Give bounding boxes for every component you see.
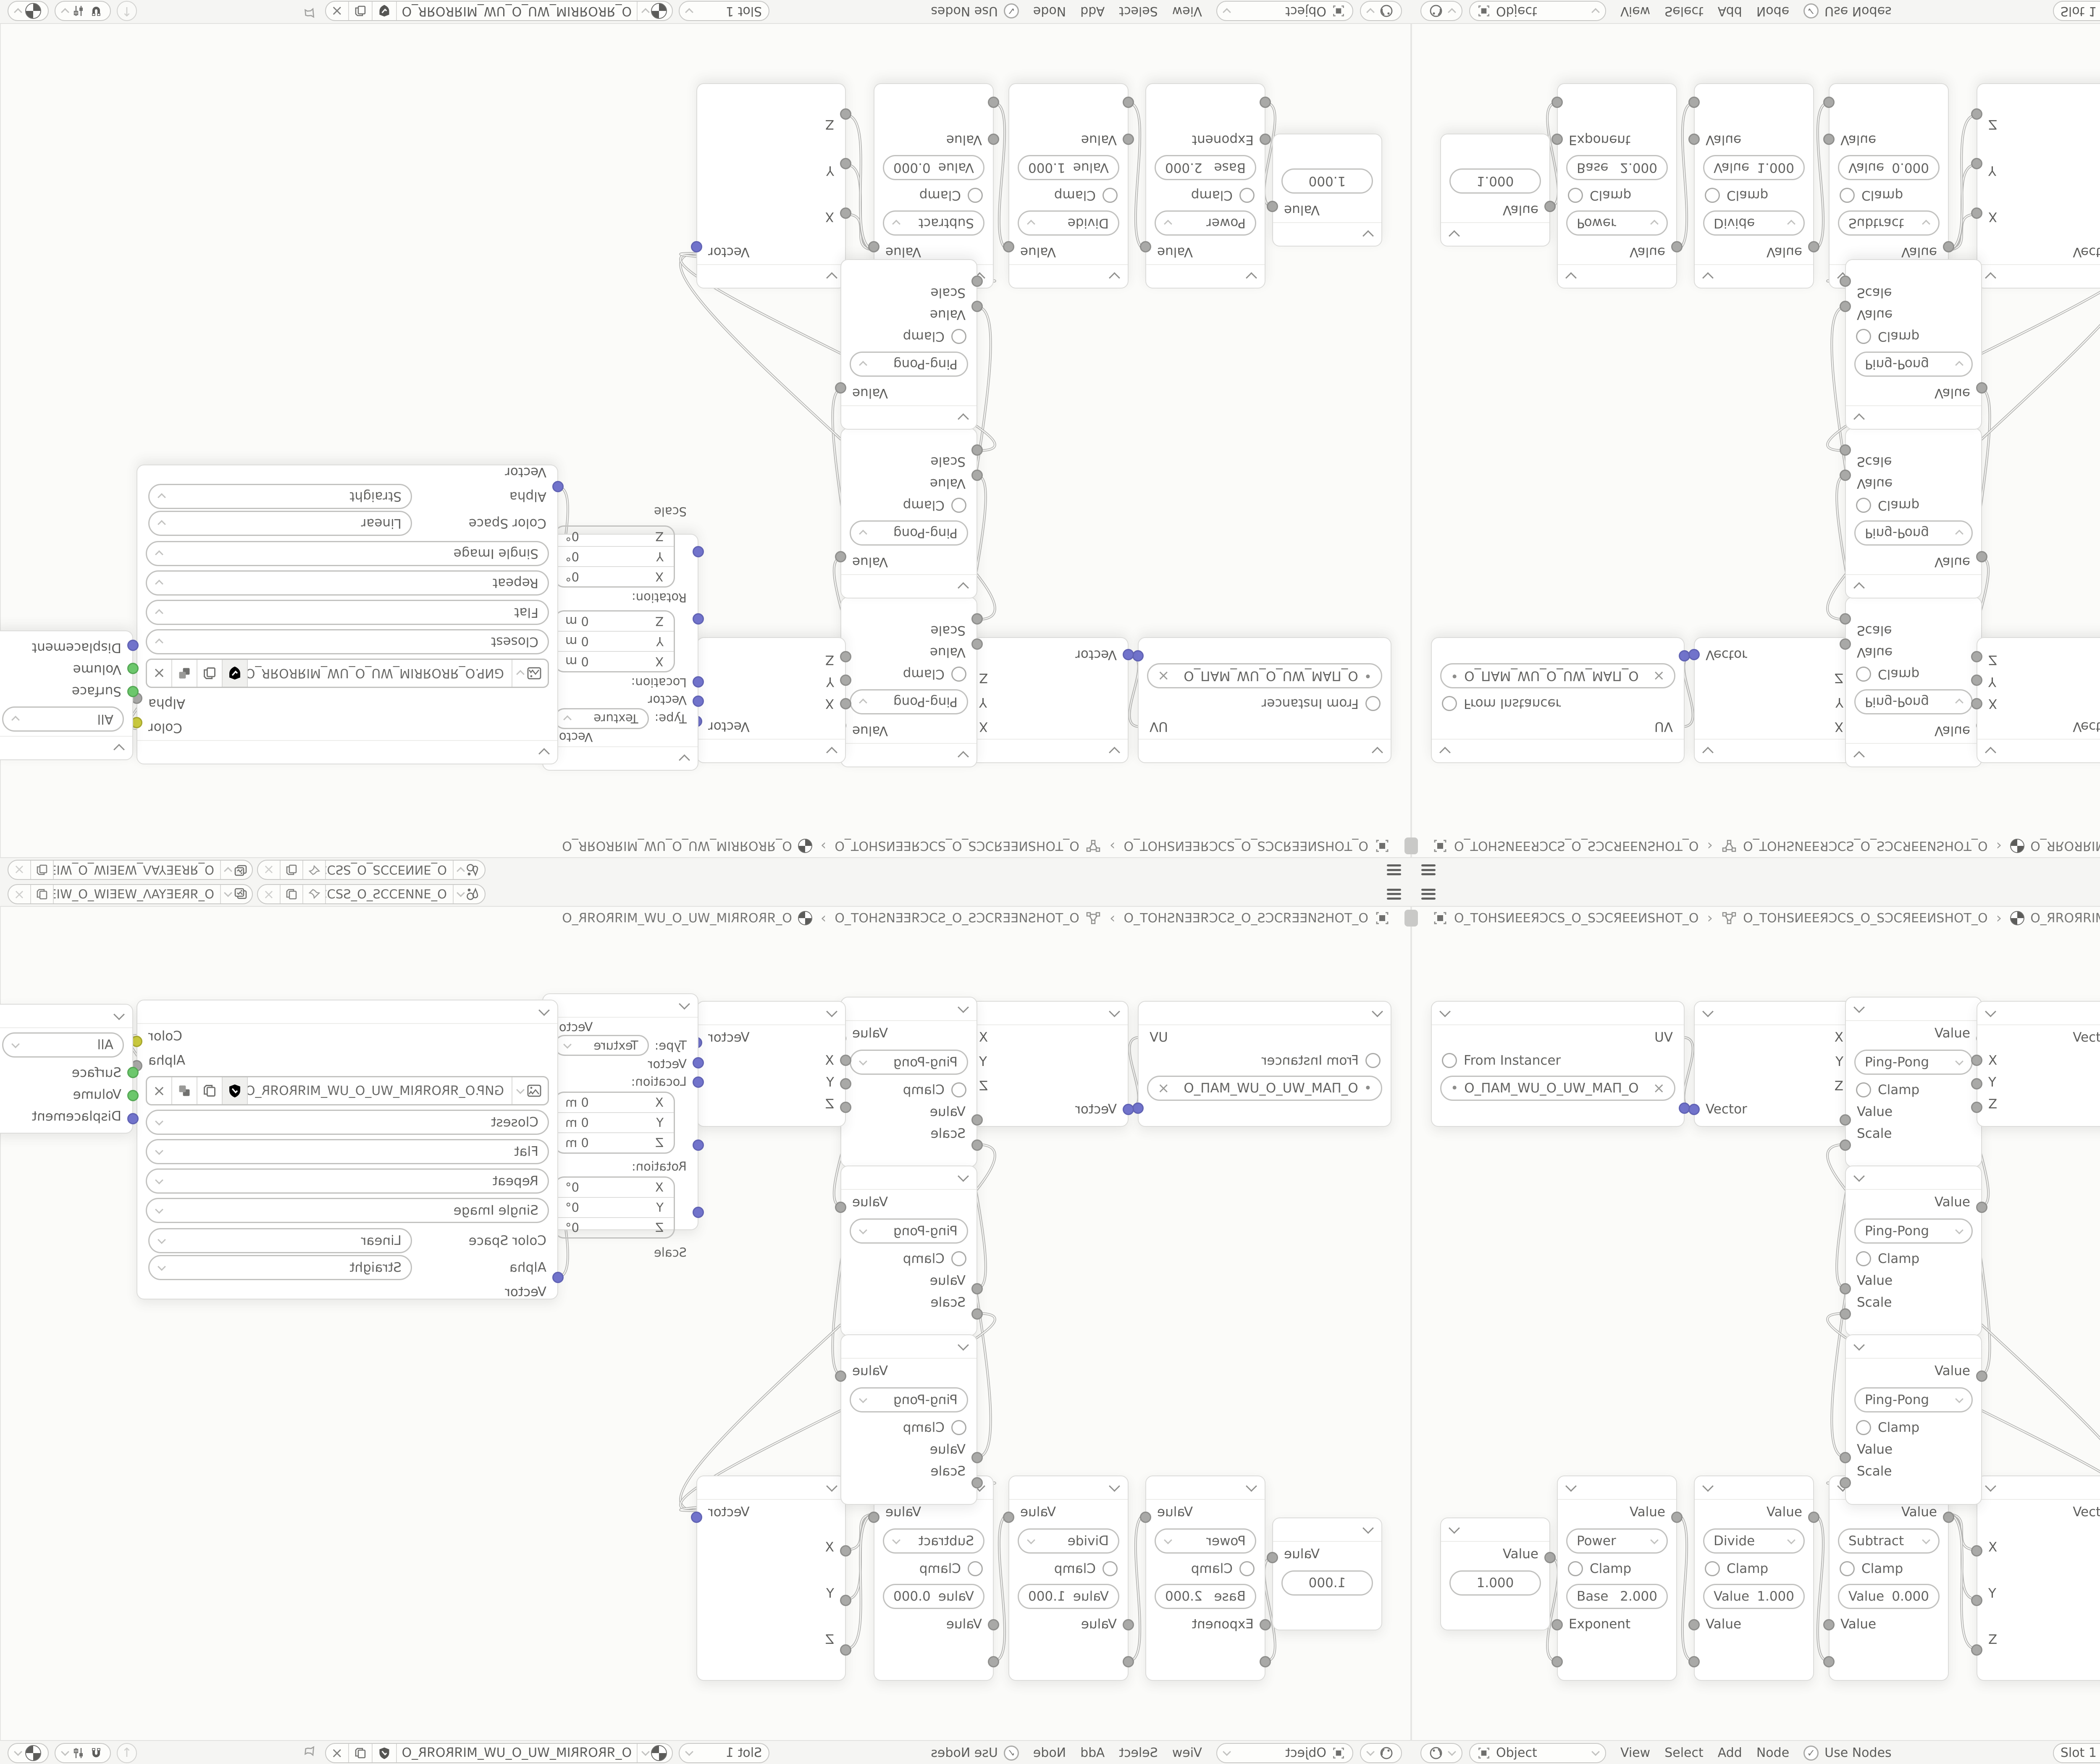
node-material-output[interactable]: All Surface Volume Displacement <box>0 630 133 760</box>
clamp-checkbox[interactable] <box>1856 1420 1871 1435</box>
pin-icon[interactable] <box>303 885 326 903</box>
socket-location-in[interactable] <box>693 676 704 688</box>
slot-dropdown[interactable]: Slot 1 <box>679 1 769 21</box>
socket-vector-in[interactable] <box>552 481 564 492</box>
node-value[interactable]: Value 1.000 <box>1272 1517 1382 1630</box>
node-mapping[interactable]: Vector Type: Texture Vector Location: X0… <box>542 534 698 771</box>
node-canvas[interactable]: UV From Instancer • O_ПAM_WU_O_UW_MAП_O … <box>0 24 1411 834</box>
socket-z-in[interactable] <box>1971 108 1982 120</box>
menu-view[interactable]: View <box>1172 1746 1202 1760</box>
socket-value1-in[interactable] <box>988 1619 999 1630</box>
snapping-controls[interactable] <box>55 1 111 21</box>
socket-value2-in[interactable] <box>1123 97 1134 108</box>
socket-value-out[interactable] <box>1267 201 1278 212</box>
socket-vector-in[interactable] <box>1688 649 1700 660</box>
material-preview[interactable] <box>637 1744 672 1762</box>
node-collapse[interactable] <box>697 1476 845 1500</box>
clamp-checkbox[interactable] <box>1705 188 1720 203</box>
node-collapse[interactable] <box>543 994 698 1018</box>
overlays-dropdown[interactable] <box>8 1743 49 1763</box>
socket-exponent-in[interactable] <box>1260 1656 1271 1667</box>
operation-dropdown[interactable]: Ping-Pong <box>1854 520 1973 546</box>
sidebar-toggle[interactable] <box>1404 910 1411 927</box>
fake-user-shield-icon[interactable] <box>372 1744 396 1762</box>
socket-value-in[interactable] <box>1840 1114 1851 1126</box>
socket-value-in[interactable] <box>1840 470 1851 481</box>
operation-dropdown[interactable]: Power <box>1155 210 1256 236</box>
socket-base-in[interactable] <box>1551 134 1563 145</box>
sidebar-toggle[interactable] <box>1411 837 1418 854</box>
uv-map-field[interactable]: • O_ПAM_WU_O_UW_MAП_O × <box>1440 663 1675 688</box>
socket-value-out[interactable] <box>868 1512 879 1523</box>
socket-value1-in[interactable] <box>1688 1619 1700 1630</box>
breadcrumb-object[interactable]: O_TOHSИEEЯƆCS_O_SƆCЯEEИSHOT_O <box>1432 910 1698 926</box>
node-collapse[interactable] <box>1695 1002 1854 1025</box>
value-field[interactable]: Value1.000 <box>1018 1584 1119 1609</box>
breadcrumb-material[interactable]: O_ЯROЯRIM_WU_O_UW_MIЯROЯR_O <box>562 839 812 853</box>
copy-icon[interactable] <box>197 1077 223 1104</box>
material-datablock[interactable]: O_ЯROЯRIM_WU_O_UW_MIЯROЯR_O × <box>325 1743 673 1763</box>
node-uv-map[interactable]: UV From Instancer • O_ПAM_WU_O_UW_MAП_O … <box>1431 637 1685 763</box>
fake-user-shield-icon[interactable] <box>223 1077 248 1104</box>
node-collapse[interactable] <box>1441 1518 1549 1542</box>
operation-dropdown[interactable]: Ping-Pong <box>850 1050 968 1075</box>
node-math-pingpong-1[interactable]: Value Ping-Pong Clamp Value Scale <box>1845 997 1982 1167</box>
socket-x-in[interactable] <box>1971 1055 1982 1066</box>
node-collapse[interactable] <box>1977 1476 2100 1500</box>
socket-z-in[interactable] <box>840 1644 851 1656</box>
target-dropdown[interactable]: All <box>2 706 124 732</box>
socket-scale-in[interactable] <box>971 276 983 287</box>
node-value[interactable]: Value 1.000 <box>1440 1517 1550 1630</box>
node-math-pingpong-1[interactable]: Value Ping-Pong Clamp Value Scale <box>840 997 977 1167</box>
clamp-checkbox[interactable] <box>951 498 966 513</box>
clamp-checkbox[interactable] <box>951 667 966 682</box>
socket-rotation-in[interactable] <box>693 1139 704 1151</box>
clamp-checkbox[interactable] <box>1856 1082 1871 1097</box>
node-math-pingpong-3[interactable]: Value Ping-Pong Clamp Value Scale <box>840 1334 977 1505</box>
socket-z-in[interactable] <box>840 651 851 662</box>
node-collapse[interactable] <box>1139 1002 1391 1025</box>
node-uv-map[interactable]: UV From Instancer • O_ПAM_WU_O_UW_MAП_O … <box>1138 1001 1391 1127</box>
pin-icon[interactable] <box>303 861 326 879</box>
clear-icon[interactable]: × <box>1158 667 1170 684</box>
node-canvas[interactable]: UV From Instancer • O_ПAM_WU_O_UW_MAП_O … <box>1411 24 2100 834</box>
menu-hamburger-icon[interactable] <box>1421 865 1436 876</box>
menu-node[interactable]: Node <box>1756 4 1789 18</box>
material-name[interactable]: O_ЯROЯRIM_WU_O_UW_MIЯROЯR_O <box>396 1744 637 1762</box>
breadcrumb-object[interactable]: O_TOHSИEEЯƆCS_O_SƆCЯEEИSHOT_O <box>1124 838 1390 854</box>
socket-value2-in[interactable] <box>1123 1656 1134 1667</box>
node-combine-xyz-top[interactable]: Vector X Y Z <box>1977 1001 2100 1127</box>
socket-scale-in[interactable] <box>1840 1477 1851 1488</box>
operation-dropdown[interactable]: Power <box>1566 1528 1668 1554</box>
operation-dropdown[interactable]: Divide <box>1018 210 1119 236</box>
base-field[interactable]: Base2.000 <box>1155 155 1256 180</box>
view-layer-selector[interactable]: O_ЯRƎEYAΛ_WƎEIW_O_WIƎEW_ΛAYƎER_O × <box>8 860 253 880</box>
socket-rotation-in[interactable] <box>693 613 704 625</box>
source-dropdown[interactable]: Single Image <box>146 1198 549 1223</box>
go-up-button[interactable]: ↑ <box>117 1 137 21</box>
socket-value-out[interactable] <box>1943 241 1954 252</box>
node-mapping[interactable]: Vector Type: Texture Vector Location: X0… <box>542 993 698 1230</box>
menu-view[interactable]: View <box>1172 4 1202 18</box>
socket-z-in[interactable] <box>1971 651 1982 662</box>
from-instancer-checkbox[interactable] <box>1365 696 1381 711</box>
value-field[interactable]: Value1.000 <box>1018 155 1119 180</box>
unlink-icon[interactable]: × <box>326 2 348 21</box>
operation-dropdown[interactable]: Ping-Pong <box>1854 689 1973 714</box>
shader-type-dropdown[interactable]: Object <box>1469 1743 1606 1763</box>
copy-icon[interactable] <box>197 660 223 687</box>
node-combine-xyz-bottom[interactable]: Vector X Y Z <box>1977 83 2100 289</box>
node-value[interactable]: Value 1.000 <box>1440 134 1550 247</box>
socket-value-out[interactable] <box>1267 1552 1278 1563</box>
node-collapse[interactable] <box>1977 264 2100 288</box>
menu-select[interactable]: Select <box>1664 1746 1704 1760</box>
node-canvas[interactable]: UV From Instancer • O_ПAM_WU_O_UW_MAП_O … <box>1411 930 2100 1740</box>
socket-y-in[interactable] <box>840 1078 851 1089</box>
unlink-icon[interactable]: × <box>258 885 281 903</box>
socket-x-in[interactable] <box>1971 207 1982 219</box>
pin-icon[interactable] <box>300 0 323 23</box>
node-collapse[interactable] <box>1695 739 1854 762</box>
operation-dropdown[interactable]: Ping-Pong <box>850 1387 968 1412</box>
node-combine-xyz-top[interactable]: Vector X Y Z <box>1977 637 2100 763</box>
alpha-dropdown[interactable]: Straight <box>148 1255 412 1280</box>
operation-dropdown[interactable]: Ping-Pong <box>850 352 968 377</box>
socket-scale-in[interactable] <box>1840 1139 1851 1151</box>
node-collapse[interactable] <box>1977 739 2100 762</box>
socket-scale-in[interactable] <box>971 1308 983 1320</box>
mapping-type-dropdown[interactable]: Texture <box>554 708 649 729</box>
extension-dropdown[interactable]: Repeat <box>146 1168 549 1194</box>
socket-value-out[interactable] <box>835 1370 846 1382</box>
alpha-dropdown[interactable]: Straight <box>148 484 412 509</box>
node-math-subtract[interactable]: Value Subtract Clamp Value0.000 Value <box>1829 1475 1949 1681</box>
projection-dropdown[interactable]: Flat <box>146 600 549 625</box>
node-combine-xyz-bottom[interactable]: Vector X Y Z <box>696 83 846 289</box>
socket-x-in[interactable] <box>1971 1545 1982 1557</box>
clamp-checkbox[interactable] <box>1239 1561 1255 1576</box>
node-collapse[interactable] <box>968 739 1128 762</box>
node-material-output[interactable]: All Surface Volume Displacement <box>0 1004 133 1134</box>
scene-selector[interactable]: O_ƎИИƎƆƆS_O_SƧƆƆƎИ... × <box>257 884 486 904</box>
socket-value-in[interactable] <box>1840 638 1851 650</box>
menu-hamburger-icon[interactable] <box>1387 889 1401 900</box>
shader-type-dropdown[interactable]: Object <box>1469 1 1606 21</box>
socket-value1-in[interactable] <box>988 134 999 145</box>
menu-add[interactable]: Add <box>1718 4 1742 18</box>
operation-dropdown[interactable]: Power <box>1155 1528 1256 1554</box>
node-collapse[interactable] <box>841 1166 976 1190</box>
socket-scale-in[interactable] <box>693 1207 704 1218</box>
operation-dropdown[interactable]: Subtract <box>883 1528 984 1554</box>
unlink-icon[interactable]: × <box>258 861 281 879</box>
socket-value-out[interactable] <box>868 241 879 252</box>
unlink-icon[interactable]: × <box>8 861 31 879</box>
node-math-pingpong-3[interactable]: Value Ping-Pong Clamp Value Scale <box>840 259 977 430</box>
socket-exponent-in[interactable] <box>1260 97 1271 108</box>
node-collapse[interactable] <box>0 736 132 759</box>
scene-name[interactable]: O_ƎИИƎƆƆS_O_SƧƆƆƎИ... <box>326 863 453 877</box>
mapping-type-dropdown[interactable]: Texture <box>554 1035 649 1056</box>
socket-x-in[interactable] <box>840 207 851 219</box>
shader-type-dropdown[interactable]: Object <box>1216 1743 1353 1763</box>
socket-vector-out[interactable] <box>691 1512 702 1523</box>
socket-value-out[interactable] <box>1976 551 1987 562</box>
unlink-icon[interactable]: × <box>147 660 172 687</box>
socket-value2-in[interactable] <box>988 97 999 108</box>
source-dropdown[interactable]: Single Image <box>146 541 549 566</box>
use-nodes-toggle[interactable]: ✓ Use Nodes <box>1803 1746 1892 1761</box>
operation-dropdown[interactable]: Divide <box>1703 1528 1805 1554</box>
use-nodes-checkbox[interactable]: ✓ <box>1004 4 1019 19</box>
socket-value-out[interactable] <box>1003 1512 1014 1523</box>
node-collapse[interactable] <box>841 997 976 1021</box>
operation-dropdown[interactable]: Ping-Pong <box>850 520 968 546</box>
node-collapse[interactable] <box>1441 222 1549 246</box>
socket-z-in[interactable] <box>1971 1644 1982 1656</box>
socket-y-in[interactable] <box>1971 158 1982 169</box>
clamp-checkbox[interactable] <box>951 1251 966 1266</box>
socket-scale-in[interactable] <box>971 1477 983 1488</box>
fake-user-shield-icon[interactable] <box>372 2 396 21</box>
socket-exponent-in[interactable] <box>1551 1656 1563 1667</box>
socket-value-in[interactable] <box>971 1283 983 1294</box>
socket-surface-in[interactable] <box>127 686 139 697</box>
socket-z-in[interactable] <box>1971 1102 1982 1113</box>
location-table[interactable]: X0 m Y0 m Z0 m <box>554 1092 675 1154</box>
copy-icon[interactable] <box>348 1744 372 1762</box>
uv-map-field[interactable]: • O_ПAM_WU_O_UW_MAП_O × <box>1440 1076 1675 1101</box>
use-nodes-checkbox[interactable]: ✓ <box>1004 1746 1019 1761</box>
breadcrumb-material[interactable]: O_ЯROЯRIM_WU_O_UW_MIЯROЯR_O <box>562 911 812 926</box>
node-math-divide[interactable]: Value Divide Clamp Value1.000 Value <box>1694 83 1814 289</box>
node-separate-xyz[interactable]: X Y Z Vector <box>967 637 1129 763</box>
pack-icon[interactable] <box>172 1077 197 1104</box>
socket-value-out[interactable] <box>1808 241 1819 252</box>
slot-dropdown[interactable]: Slot 1 <box>2053 1 2100 21</box>
clamp-checkbox[interactable] <box>1568 1561 1583 1576</box>
socket-value1-in[interactable] <box>1823 134 1835 145</box>
socket-vector-in[interactable] <box>1123 649 1134 660</box>
clamp-checkbox[interactable] <box>951 1082 966 1097</box>
socket-x-in[interactable] <box>1971 698 1982 709</box>
socket-exponent-in[interactable] <box>1551 97 1563 108</box>
rotation-table[interactable]: X0° Y0° Z0° <box>554 525 675 588</box>
socket-value-out[interactable] <box>1671 241 1683 252</box>
node-collapse[interactable] <box>1846 574 1981 598</box>
clamp-checkbox[interactable] <box>1840 188 1855 203</box>
view-layer-name[interactable]: O_ЯRƎEYAΛ_WƎEIW_O_WIƎEW_ΛAYƎER_O <box>54 863 220 877</box>
from-instancer-checkbox[interactable] <box>1365 1053 1381 1068</box>
operation-dropdown[interactable]: Ping-Pong <box>850 689 968 714</box>
sidebar-toggle[interactable] <box>1404 837 1411 854</box>
socket-value-out[interactable] <box>1976 1370 1987 1382</box>
clamp-checkbox[interactable] <box>1705 1561 1720 1576</box>
operation-dropdown[interactable]: Subtract <box>1838 1528 1940 1554</box>
image-datablock-field[interactable]: GИP.O_ЯROЯRIM_WU_O_UW_MIЯROЯR_O.PNG × <box>146 659 549 688</box>
node-math-pingpong-3[interactable]: Value Ping-Pong Clamp Value Scale <box>1845 259 1982 430</box>
base-field[interactable]: Base2.000 <box>1155 1584 1256 1609</box>
editor-type-button[interactable] <box>1360 1743 1402 1763</box>
socket-value-out[interactable] <box>835 1202 846 1213</box>
clamp-checkbox[interactable] <box>951 1420 966 1435</box>
socket-scale-in[interactable] <box>971 1139 983 1151</box>
socket-value-in[interactable] <box>971 470 983 481</box>
node-collapse[interactable] <box>1695 1476 1813 1500</box>
material-datablock[interactable]: O_ЯROЯRIM_WU_O_UW_MIЯROЯR_O × <box>325 1 673 21</box>
uv-map-field[interactable]: • O_ПAM_WU_O_UW_MAП_O × <box>1147 1076 1382 1101</box>
socket-volume-in[interactable] <box>127 1090 139 1101</box>
socket-value-out[interactable] <box>835 551 846 562</box>
node-math-power[interactable]: Value Power Clamp Base2.000 Exponent <box>1557 1475 1677 1681</box>
use-nodes-checkbox[interactable]: ✓ <box>1803 4 1819 19</box>
socket-z-in[interactable] <box>840 1102 851 1113</box>
node-collapse[interactable] <box>841 574 976 598</box>
socket-value-out[interactable] <box>1976 382 1987 394</box>
socket-value2-in[interactable] <box>1688 1656 1700 1667</box>
menu-hamburger-icon[interactable] <box>1387 865 1401 876</box>
value-field[interactable]: 1.000 <box>1281 1570 1373 1596</box>
socket-value2-in[interactable] <box>1823 97 1835 108</box>
clamp-checkbox[interactable] <box>1856 667 1871 682</box>
node-collapse[interactable] <box>1846 1335 1981 1359</box>
clamp-checkbox[interactable] <box>968 1561 983 1576</box>
unlink-icon[interactable]: × <box>147 1077 172 1104</box>
value-field[interactable]: Value0.000 <box>883 1584 984 1609</box>
operation-dropdown[interactable]: Ping-Pong <box>1854 352 1973 377</box>
clamp-checkbox[interactable] <box>1856 498 1871 513</box>
node-canvas[interactable]: UV From Instancer • O_ПAM_WU_O_UW_MAП_O … <box>0 930 1411 1740</box>
node-collapse[interactable] <box>1977 1002 2100 1025</box>
value-field[interactable]: 1.000 <box>1449 168 1541 194</box>
editor-type-button[interactable] <box>1420 1 1462 21</box>
socket-base-in[interactable] <box>1551 1619 1563 1630</box>
socket-vector-in[interactable] <box>1123 1104 1134 1115</box>
value-field[interactable]: Value1.000 <box>1703 155 1805 180</box>
node-collapse[interactable] <box>1009 1476 1128 1500</box>
base-field[interactable]: Base2.000 <box>1566 1584 1668 1609</box>
socket-value2-in[interactable] <box>1688 97 1700 108</box>
menu-add[interactable]: Add <box>1718 1746 1742 1760</box>
location-table[interactable]: X0 m Y0 m Z0 m <box>554 610 675 672</box>
node-math-pingpong-2[interactable]: Value Ping-Pong Clamp Value Scale <box>1845 428 1982 598</box>
node-math-pingpong-2[interactable]: Value Ping-Pong Clamp Value Scale <box>1845 1165 1982 1336</box>
socket-x-in[interactable] <box>840 698 851 709</box>
overlays-dropdown[interactable] <box>8 1 49 21</box>
node-collapse[interactable] <box>697 264 845 288</box>
clamp-checkbox[interactable] <box>1239 188 1255 203</box>
socket-base-in[interactable] <box>1260 1619 1271 1630</box>
rotation-table[interactable]: X0° Y0° Z0° <box>554 1176 675 1239</box>
socket-scale-in[interactable] <box>1840 613 1851 625</box>
value-field[interactable]: Value0.000 <box>883 155 984 180</box>
node-collapse[interactable] <box>841 1335 976 1359</box>
node-collapse[interactable] <box>1695 264 1813 288</box>
socket-scale-in[interactable] <box>971 613 983 625</box>
clear-icon[interactable]: × <box>1653 667 1665 684</box>
socket-x-in[interactable] <box>840 1055 851 1066</box>
new-copy-icon[interactable] <box>31 885 54 903</box>
menu-node[interactable]: Node <box>1033 1746 1066 1760</box>
node-collapse[interactable] <box>841 405 976 429</box>
value-field[interactable]: Value1.000 <box>1703 1584 1805 1609</box>
node-collapse[interactable] <box>1846 1166 1981 1190</box>
socket-z-in[interactable] <box>840 108 851 120</box>
socket-value-out[interactable] <box>1671 1512 1683 1523</box>
menu-hamburger-icon[interactable] <box>1421 889 1436 900</box>
node-separate-xyz[interactable]: X Y Z Vector <box>967 1001 1129 1127</box>
socket-value-out[interactable] <box>1140 241 1151 252</box>
menu-node[interactable]: Node <box>1756 1746 1789 1760</box>
node-image-texture[interactable]: Color Alpha GИP.O_ЯROЯRIM_WU_O_UW_MIЯROЯ… <box>136 465 558 764</box>
new-copy-icon[interactable] <box>281 861 303 879</box>
target-dropdown[interactable]: All <box>2 1032 124 1058</box>
use-nodes-toggle[interactable]: ✓ Use Nodes <box>1803 4 1892 19</box>
socket-value2-in[interactable] <box>1823 1656 1835 1667</box>
node-math-power[interactable]: Value Power Clamp Base2.000 Exponent <box>1557 83 1677 289</box>
new-copy-icon[interactable] <box>281 885 303 903</box>
socket-displacement-in[interactable] <box>127 1113 139 1124</box>
view-layer-selector[interactable]: O_ЯRƎEYAΛ_WƎEIW_O_WIƎEW_ΛAYƎER_O × <box>8 884 253 904</box>
socket-scale-in[interactable] <box>1840 1308 1851 1320</box>
node-separate-xyz[interactable]: X Y Z Vector <box>1694 1001 1855 1127</box>
node-uv-map[interactable]: UV From Instancer • O_ПAM_WU_O_UW_MAП_O … <box>1138 637 1391 763</box>
clamp-checkbox[interactable] <box>1102 188 1118 203</box>
snapping-controls[interactable] <box>55 1743 111 1763</box>
socket-value-out[interactable] <box>1943 1512 1954 1523</box>
socket-value-in[interactable] <box>971 638 983 650</box>
node-math-divide[interactable]: Value Divide Clamp Value1.000 Value <box>1008 83 1129 289</box>
socket-value-out[interactable] <box>1140 1512 1151 1523</box>
socket-vector-in[interactable] <box>693 696 704 707</box>
socket-scale-in[interactable] <box>1840 444 1851 456</box>
socket-value2-in[interactable] <box>988 1656 999 1667</box>
operation-dropdown[interactable]: Ping-Pong <box>850 1218 968 1244</box>
base-field[interactable]: Base2.000 <box>1566 155 1668 180</box>
uv-map-field[interactable]: • O_ПAM_WU_O_UW_MAП_O × <box>1147 663 1382 688</box>
node-math-pingpong-1[interactable]: Value Ping-Pong Clamp Value Scale <box>840 597 977 767</box>
scene-selector[interactable]: O_ƎИИƎƆƆS_O_SƧƆƆƎИ... × <box>257 860 486 880</box>
sidebar-toggle[interactable] <box>1411 910 1418 927</box>
socket-value-in[interactable] <box>971 1114 983 1126</box>
socket-surface-in[interactable] <box>127 1067 139 1078</box>
use-nodes-toggle[interactable]: ✓ Use Nodes <box>931 4 1019 19</box>
clamp-checkbox[interactable] <box>951 329 966 344</box>
node-math-subtract[interactable]: Value Subtract Clamp Value0.000 Value <box>1829 83 1949 289</box>
socket-value-out[interactable] <box>1544 201 1556 212</box>
socket-value1-in[interactable] <box>1688 134 1700 145</box>
node-collapse[interactable] <box>137 740 557 764</box>
node-collapse[interactable] <box>697 739 845 762</box>
value-field[interactable]: Value0.000 <box>1838 155 1940 180</box>
menu-select[interactable]: Select <box>1119 1746 1158 1760</box>
socket-value1-in[interactable] <box>1123 1619 1134 1630</box>
fake-user-shield-icon[interactable] <box>223 660 248 687</box>
operation-dropdown[interactable]: Power <box>1566 210 1668 236</box>
view-layer-name[interactable]: O_ЯRƎEYAΛ_WƎEIW_O_WIƎEW_ΛAYƎER_O <box>54 887 220 901</box>
socket-volume-in[interactable] <box>127 663 139 674</box>
node-collapse[interactable] <box>1558 1476 1676 1500</box>
node-collapse[interactable] <box>1846 997 1981 1021</box>
socket-value-in[interactable] <box>1840 1452 1851 1463</box>
node-collapse[interactable] <box>137 1000 557 1024</box>
socket-vector-in[interactable] <box>1688 1104 1700 1115</box>
node-combine-xyz-top[interactable]: Vector X Y Z <box>696 637 846 763</box>
node-math-divide[interactable]: Value Divide Clamp Value1.000 Value <box>1694 1475 1814 1681</box>
